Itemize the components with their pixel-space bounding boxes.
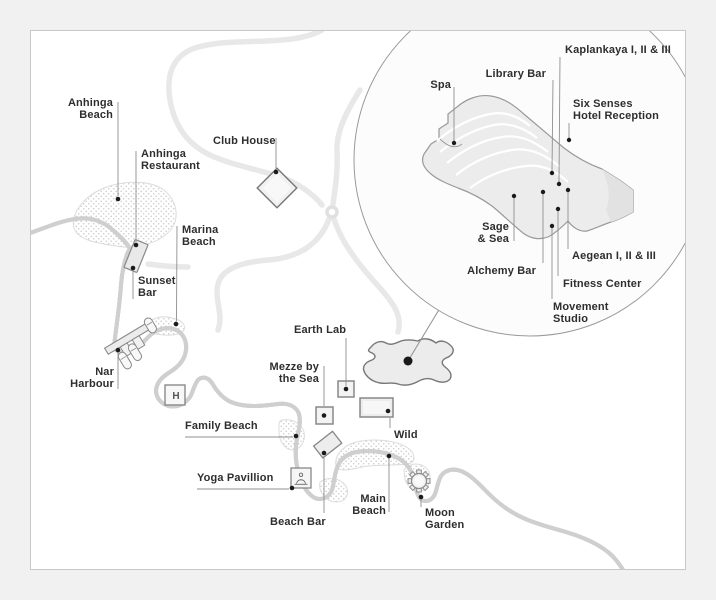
label-marina-beach: Marina Beach: [182, 225, 218, 248]
label-library-bar: Library Bar: [474, 69, 546, 81]
label-main-beach: Main Beach: [316, 494, 386, 517]
label-alchemy-bar: Alchemy Bar: [464, 266, 536, 278]
yoga-pavillion-building: [291, 468, 311, 488]
label-spa: Spa: [409, 80, 451, 92]
label-aegean: Aegean I, II & III: [572, 251, 656, 263]
label-nar-harbour: Nar Harbour: [42, 367, 114, 390]
label-six-senses-hotel-reception: Six Senses Hotel Reception: [573, 99, 659, 122]
roundabout: [327, 207, 337, 217]
label-moon-garden: Moon Garden: [425, 508, 464, 531]
label-mezze-by-the-sea: Mezze by the Sea: [247, 362, 319, 385]
label-wild: Wild: [394, 430, 418, 442]
label-fitness-center: Fitness Center: [563, 279, 642, 291]
label-anhinga-restaurant: Anhinga Restaurant: [141, 149, 200, 172]
map-panel: Anhinga Beach Anhinga Restaurant Club Ho…: [30, 30, 686, 570]
label-movement-studio: Movement Studio: [553, 302, 609, 325]
label-beach-bar: Beach Bar: [270, 517, 326, 529]
label-yoga-pavillion: Yoga Pavillion: [197, 473, 273, 485]
helipad-letter: H: [166, 386, 186, 406]
wild-building: [360, 398, 393, 417]
label-sunset-bar: Sunset Bar: [138, 276, 176, 299]
hotel-dot: [404, 357, 413, 366]
label-sage-and-sea: Sage & Sea: [447, 222, 509, 245]
label-kaplankaya: Kaplankaya I, II & III: [565, 45, 671, 57]
label-family-beach: Family Beach: [185, 421, 258, 433]
moon-garden-icon: [408, 470, 430, 492]
label-club-house: Club House: [213, 136, 276, 148]
label-anhinga-beach: Anhinga Beach: [41, 98, 113, 121]
anhinga-beach-area: [73, 182, 176, 247]
beach-bar-building: [314, 431, 342, 458]
label-earth-lab: Earth Lab: [294, 325, 346, 337]
resort-map-page: { "map_labels": { "anhinga_beach": "Anhi…: [0, 0, 716, 600]
